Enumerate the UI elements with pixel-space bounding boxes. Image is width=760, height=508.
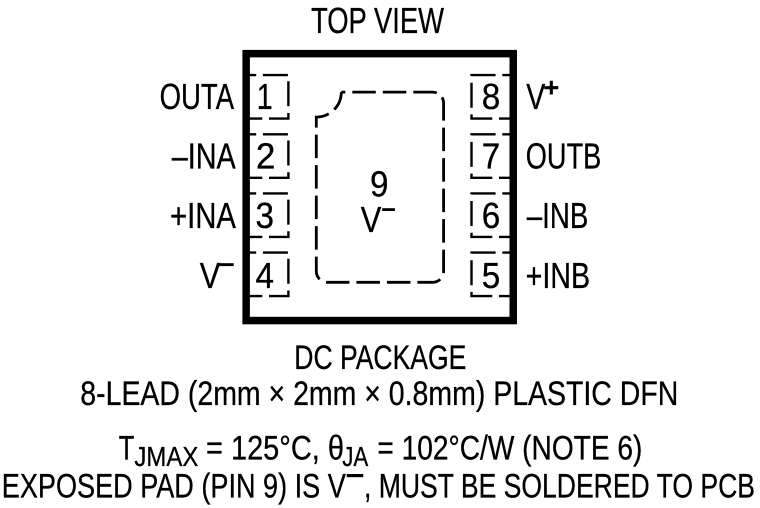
svg-text:= 125°C, θ: = 125°C, θ xyxy=(206,429,344,467)
svg-text:4: 4 xyxy=(256,256,275,296)
svg-text:OUTA: OUTA xyxy=(160,77,235,117)
svg-text:TOP VIEW: TOP VIEW xyxy=(311,1,444,41)
svg-text:V: V xyxy=(200,256,221,296)
svg-text:DC PACKAGE: DC PACKAGE xyxy=(294,339,466,377)
svg-text:, MUST BE SOLDERED TO PCB: , MUST BE SOLDERED TO PCB xyxy=(364,467,755,505)
svg-text:= 102°C/W (NOTE 6): = 102°C/W (NOTE 6) xyxy=(377,429,642,467)
svg-text:5: 5 xyxy=(482,256,501,296)
svg-text:–INB: –INB xyxy=(527,196,589,236)
svg-text:1: 1 xyxy=(257,77,273,117)
svg-text:+INA: +INA xyxy=(170,196,236,236)
svg-text:8: 8 xyxy=(482,77,501,117)
svg-text:V: V xyxy=(361,200,382,240)
svg-text:+INB: +INB xyxy=(526,256,591,296)
svg-text:2: 2 xyxy=(256,137,276,177)
svg-text:OUTB: OUTB xyxy=(526,137,602,177)
svg-text:6: 6 xyxy=(482,196,501,236)
svg-text:3: 3 xyxy=(256,196,275,236)
svg-text:T: T xyxy=(119,429,135,467)
svg-text:7: 7 xyxy=(482,137,501,177)
svg-text:V: V xyxy=(526,77,545,117)
svg-text:8-LEAD (2mm × 2mm × 0.8mm) PLA: 8-LEAD (2mm × 2mm × 0.8mm) PLASTIC DFN xyxy=(80,375,678,413)
svg-text:–INA: –INA xyxy=(172,137,236,177)
svg-text:EXPOSED PAD (PIN 9) IS V: EXPOSED PAD (PIN 9) IS V xyxy=(2,467,346,505)
svg-text:9: 9 xyxy=(370,164,389,204)
